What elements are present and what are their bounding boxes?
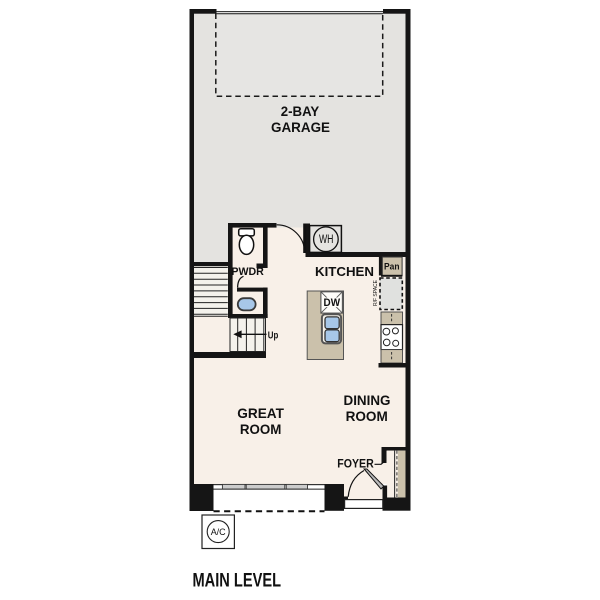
svg-text:DW: DW [324, 297, 341, 309]
svg-text:Up: Up [268, 329, 279, 341]
svg-text:Pan: Pan [384, 261, 400, 272]
svg-text:ROOM: ROOM [240, 421, 282, 437]
svg-text:MAIN LEVEL: MAIN LEVEL [193, 570, 282, 591]
svg-text:WH: WH [319, 234, 334, 246]
svg-text:R/F SPACE: R/F SPACE [373, 280, 379, 306]
svg-text:A/C: A/C [211, 527, 226, 537]
svg-text:2-BAY: 2-BAY [281, 103, 320, 119]
svg-text:ROOM: ROOM [346, 408, 388, 424]
svg-text:PWDR: PWDR [231, 266, 264, 278]
svg-text:GREAT: GREAT [237, 405, 284, 421]
svg-text:DINING: DINING [344, 392, 391, 408]
svg-text:KITCHEN: KITCHEN [315, 264, 374, 279]
svg-text:GARAGE: GARAGE [271, 119, 330, 135]
svg-text:FOYER: FOYER [337, 459, 374, 471]
